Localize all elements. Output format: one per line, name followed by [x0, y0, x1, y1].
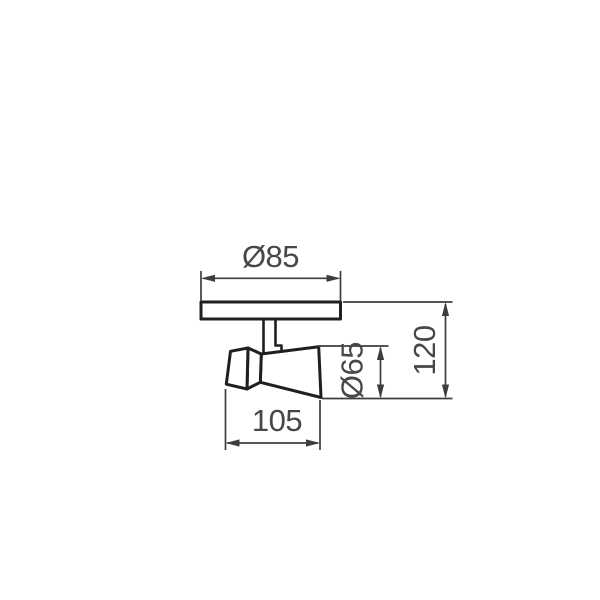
- mounting-stem: [264, 319, 282, 354]
- lamp-head-back-cap: [226, 348, 248, 389]
- canopy-plate: [201, 302, 341, 319]
- dimension-head-length: 105: [226, 389, 321, 450]
- lamp-head-cone: [260, 347, 321, 398]
- dim-120-arrow-top: [442, 302, 449, 316]
- dim-65-arrow-top: [377, 346, 384, 360]
- dim-120-arrow-bottom: [442, 385, 449, 399]
- dim-65-arrow-bottom: [377, 385, 384, 399]
- dim-105-arrow-left: [226, 439, 240, 446]
- dim-65-label: Ø65: [335, 342, 370, 399]
- dim-85-arrow-right: [327, 275, 341, 282]
- spotlight-dimension-drawing: Ø85 120 Ø65 105: [0, 0, 600, 600]
- dim-105-label: 105: [252, 403, 302, 438]
- drawing-canvas: Ø85 120 Ø65 105: [0, 0, 600, 600]
- dimension-shade-diameter: Ø65: [318, 342, 389, 399]
- dim-120-label: 120: [407, 325, 442, 375]
- dimension-plate-diameter: Ø85: [201, 239, 341, 301]
- dim-105-arrow-right: [306, 439, 320, 446]
- dim-85-label: Ø85: [242, 239, 299, 274]
- spotlight-figure: [201, 302, 341, 398]
- dim-85-arrow-left: [201, 275, 215, 282]
